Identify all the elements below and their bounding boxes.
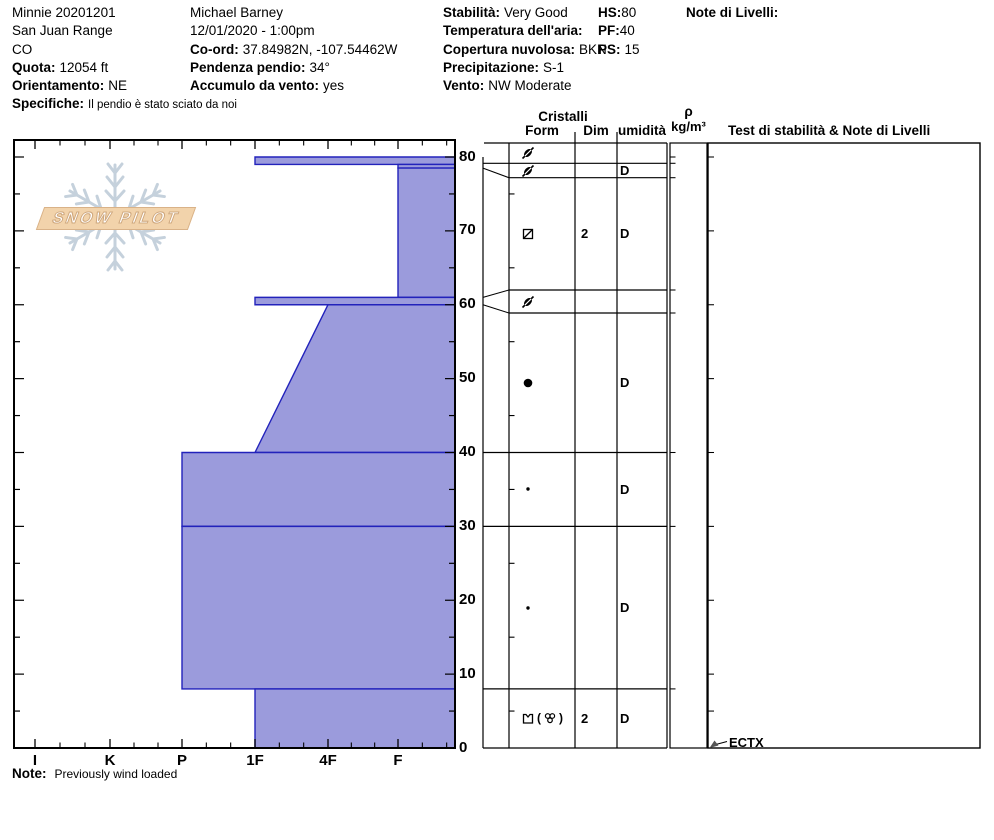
hardness-axis-label: K (96, 752, 124, 769)
depth-axis-label: 10 (459, 665, 485, 682)
grain-decomposing-fragments-icon (521, 146, 535, 160)
depth-axis-label: 70 (459, 221, 485, 238)
layer-grain-form (521, 164, 535, 178)
layer-grain-form (521, 295, 535, 309)
grain-rounded-small-icon (521, 601, 535, 615)
layer-moisture: D (620, 163, 629, 178)
snowpilot-report: Minnie 20201201 San Juan Range CO Quota:… (0, 0, 994, 840)
hardness-axis-label: F (384, 752, 412, 769)
grain-decomposing-fragments-icon (521, 295, 535, 309)
layer-grain-form (521, 482, 535, 496)
layer-grain-form: () (521, 711, 563, 725)
grain-decomposing-fragments-icon (521, 164, 535, 178)
depth-axis-label: 20 (459, 591, 485, 608)
layer-moisture: D (620, 226, 629, 241)
grain-rounded-small-icon (521, 482, 535, 496)
depth-axis-label: 0 (459, 739, 485, 756)
layer-grain-form (521, 227, 535, 241)
depth-axis-label: 60 (459, 295, 485, 312)
layer-moisture: D (620, 600, 629, 615)
grain-rounded-icon (521, 376, 535, 390)
layer-grain-size: 2 (581, 711, 588, 726)
layer-grain-form (521, 146, 535, 160)
hardness-axis-label: P (168, 752, 196, 769)
layer-moisture: D (620, 711, 629, 726)
grain-faceted-slash-icon (521, 227, 535, 241)
grain-rounding-facets-icon (521, 711, 535, 725)
hardness-axis-label: I (21, 752, 49, 769)
layer-moisture: D (620, 482, 629, 497)
layer-grain-size: 2 (581, 226, 588, 241)
layer-moisture: D (620, 375, 629, 390)
hardness-axis-label: 4F (314, 752, 342, 769)
hardness-axis-label: 1F (241, 752, 269, 769)
layer-grain-form (521, 601, 535, 615)
grain-melt-cluster-icon (543, 711, 557, 725)
generated-labels: 01020304050607080IKP1F4FFD2DDDD()2D (0, 0, 994, 840)
depth-axis-label: 80 (459, 148, 485, 165)
layer-grain-form (521, 376, 535, 390)
depth-axis-label: 50 (459, 369, 485, 386)
depth-axis-label: 30 (459, 517, 485, 534)
depth-axis-label: 40 (459, 443, 485, 460)
